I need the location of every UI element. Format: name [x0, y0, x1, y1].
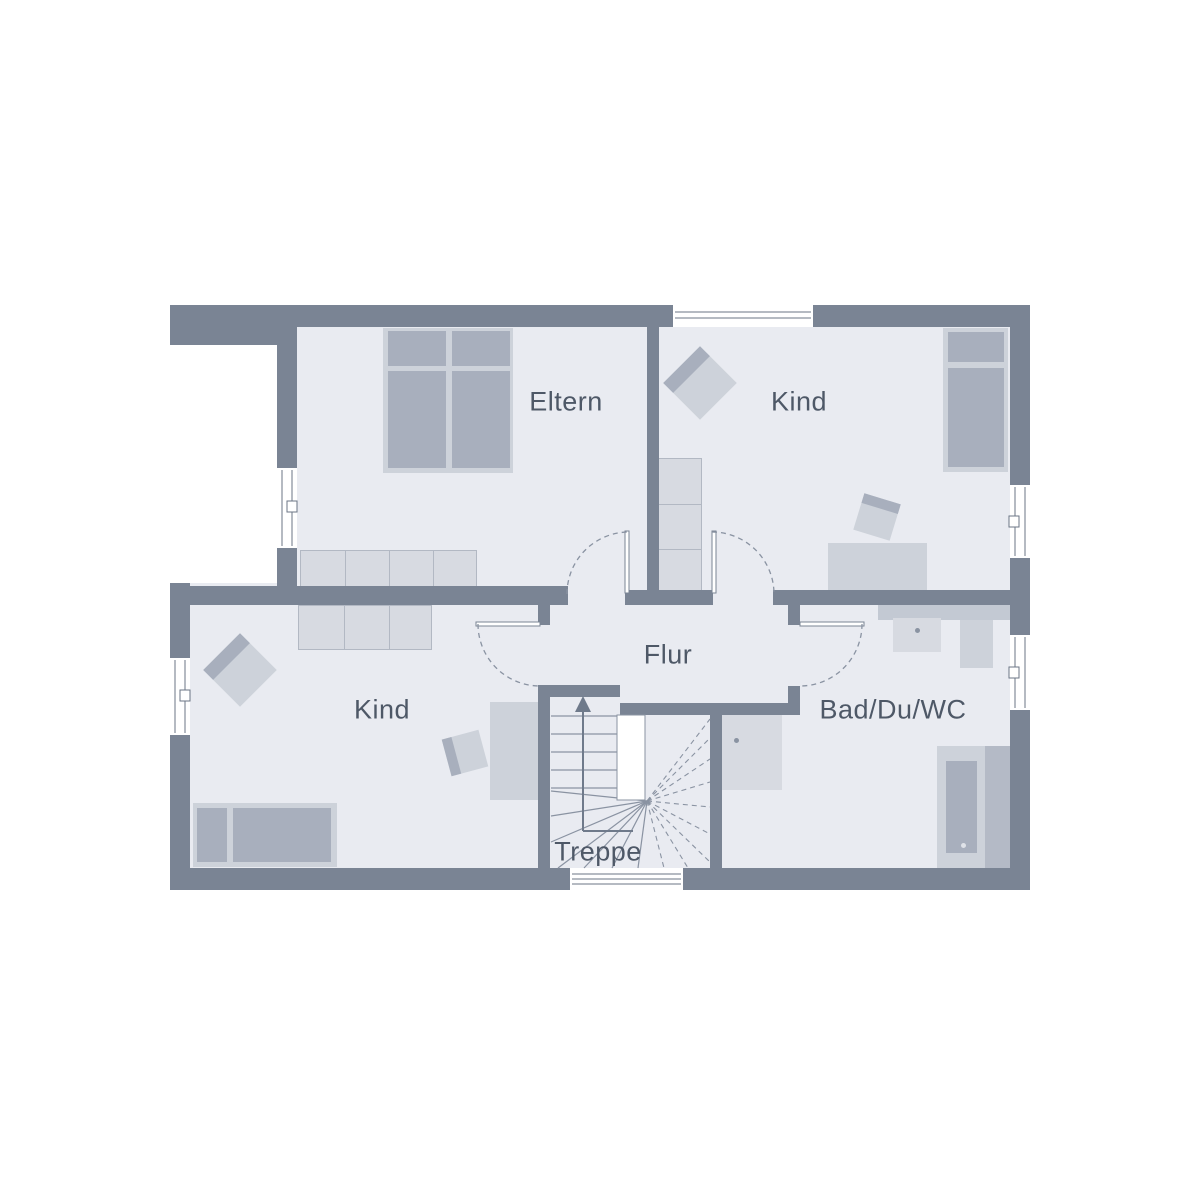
wall-kind-door-stub	[538, 605, 550, 625]
wall-exterior-left-upper	[277, 305, 297, 605]
bed-pillow	[388, 331, 446, 366]
room-label-flur: Flur	[644, 640, 693, 671]
wall-stair-right	[710, 703, 722, 868]
bath-washbasin	[893, 618, 941, 652]
room-label-kind-bottom: Kind	[354, 695, 410, 726]
bath-cabinet	[960, 620, 993, 668]
room-label-treppe: Treppe	[554, 837, 642, 868]
room-label-kind-top: Kind	[771, 387, 827, 418]
bathtub-drain-dot	[961, 843, 966, 848]
bed-pillow	[452, 331, 510, 366]
bed-pillow	[197, 808, 227, 862]
wall-step-horizontal	[170, 586, 568, 605]
shower-drain-dot	[734, 738, 739, 743]
bathtub-ledge	[985, 746, 1010, 868]
window-right-kind	[1010, 485, 1030, 558]
eltern-double-bed	[383, 328, 513, 473]
wall-flur-top-mid	[625, 590, 713, 605]
kind-top-desk	[828, 543, 927, 593]
window-left-eltern	[277, 468, 297, 548]
kind-top-wardrobe	[658, 458, 702, 593]
wall-stair-top-left	[538, 685, 620, 697]
kind-top-bed	[943, 328, 1008, 472]
bed-mattress	[452, 371, 510, 468]
window-bottom	[570, 868, 683, 890]
bed-mattress	[948, 368, 1004, 467]
wall-divider-eltern-kind	[647, 327, 659, 593]
bath-shower	[722, 714, 782, 790]
wall-flur-top-right	[773, 590, 1030, 605]
wall-bad-door-stub-bottom	[788, 686, 800, 715]
wall-bad-door-stub-top	[788, 605, 800, 625]
kind-bottom-desk	[490, 702, 538, 800]
room-label-bad: Bad/Du/WC	[819, 695, 966, 726]
window-top	[673, 305, 813, 327]
wall-stair-left	[538, 686, 550, 868]
bathtub-inner	[946, 761, 977, 853]
window-left-kind	[170, 658, 190, 735]
bathtub	[937, 746, 985, 868]
wall-exterior-top	[170, 305, 1030, 327]
window-right-bad	[1010, 635, 1030, 710]
kind-bottom-wardrobe	[298, 605, 432, 650]
wall-exterior-left-lower	[170, 583, 190, 890]
floor-plan-page: { "plan": { "rooms": { "eltern": { "labe…	[0, 0, 1200, 1200]
room-label-eltern: Eltern	[529, 387, 603, 418]
washbasin-faucet-dot	[915, 628, 920, 633]
bed-mattress	[233, 808, 331, 862]
kind-bottom-bed	[193, 803, 337, 867]
bed-mattress	[388, 371, 446, 468]
bed-pillow	[948, 332, 1004, 362]
